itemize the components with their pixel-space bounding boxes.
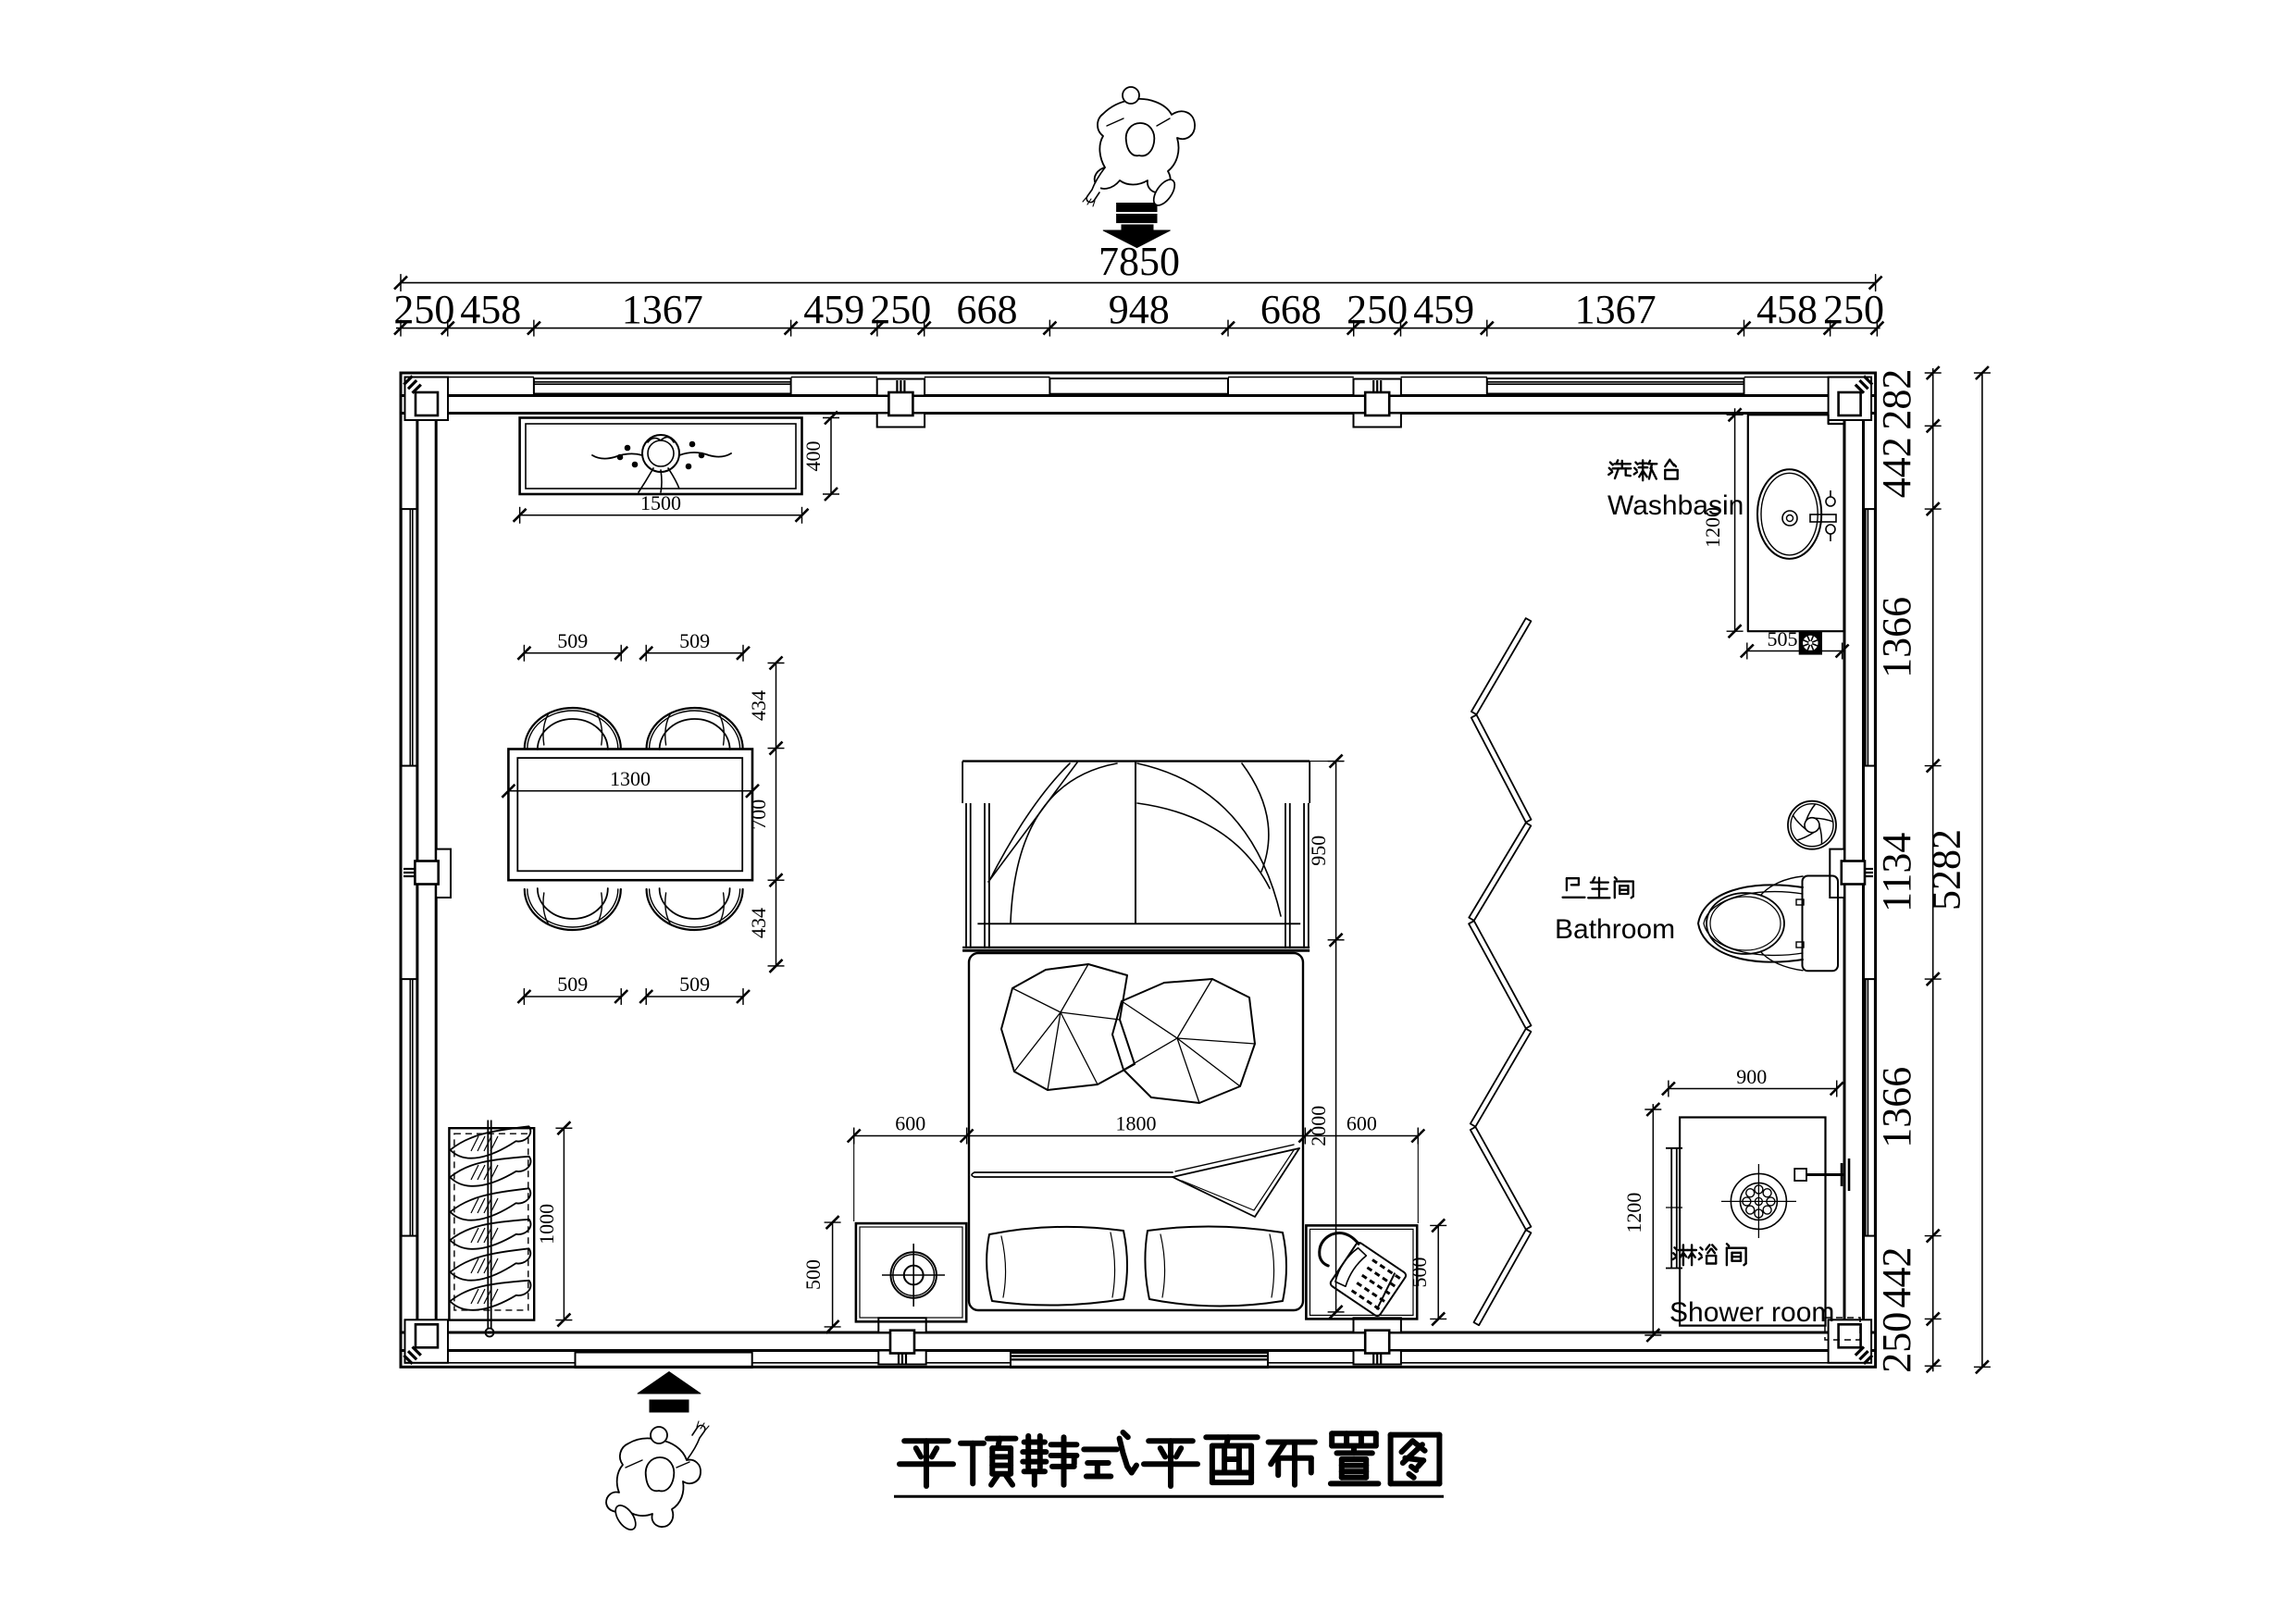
svg-text:668: 668 [957,287,1018,332]
svg-text:Shower room: Shower room [1669,1297,1834,1328]
svg-text:2000: 2000 [1307,1106,1330,1146]
svg-text:600: 600 [895,1112,925,1135]
svg-text:700: 700 [747,799,770,830]
svg-text:434: 434 [747,690,770,721]
svg-text:282: 282 [1874,369,1919,430]
svg-text:1800: 1800 [1116,1112,1157,1135]
svg-text:500: 500 [801,1259,825,1290]
svg-text:668: 668 [1260,287,1322,332]
svg-text:442: 442 [1874,1247,1919,1308]
svg-text:1300: 1300 [610,767,651,790]
svg-text:442: 442 [1874,437,1919,498]
svg-text:900: 900 [1736,1065,1767,1088]
svg-text:950: 950 [1307,836,1330,866]
svg-text:1367: 1367 [622,287,703,332]
svg-text:Bathroom: Bathroom [1555,914,1675,945]
svg-text:250: 250 [870,287,931,332]
svg-text:1366: 1366 [1874,1067,1919,1148]
svg-text:250: 250 [393,287,454,332]
svg-text:250: 250 [1823,287,1884,332]
svg-text:459: 459 [803,287,864,332]
svg-text:434: 434 [747,908,770,938]
svg-text:509: 509 [557,629,588,652]
svg-text:1200: 1200 [1622,1193,1645,1233]
svg-text:250: 250 [1874,1312,1919,1373]
svg-text:1366: 1366 [1874,597,1919,678]
svg-text:509: 509 [679,973,710,996]
svg-text:1500: 1500 [640,491,681,514]
svg-text:509: 509 [557,973,588,996]
svg-text:500: 500 [1408,1258,1431,1288]
svg-text:1000: 1000 [535,1204,558,1245]
svg-text:Washbasin: Washbasin [1607,490,1744,521]
svg-text:458: 458 [1756,287,1818,332]
svg-text:459: 459 [1413,287,1474,332]
svg-text:1367: 1367 [1575,287,1657,332]
svg-text:458: 458 [460,287,521,332]
svg-text:600: 600 [1347,1112,1377,1135]
svg-text:505: 505 [1768,627,1798,650]
svg-text:250: 250 [1347,287,1408,332]
svg-text:509: 509 [679,629,710,652]
svg-text:400: 400 [801,441,825,472]
svg-text:948: 948 [1109,287,1170,332]
svg-text:5282: 5282 [1924,829,1969,911]
svg-text:1134: 1134 [1874,833,1919,912]
